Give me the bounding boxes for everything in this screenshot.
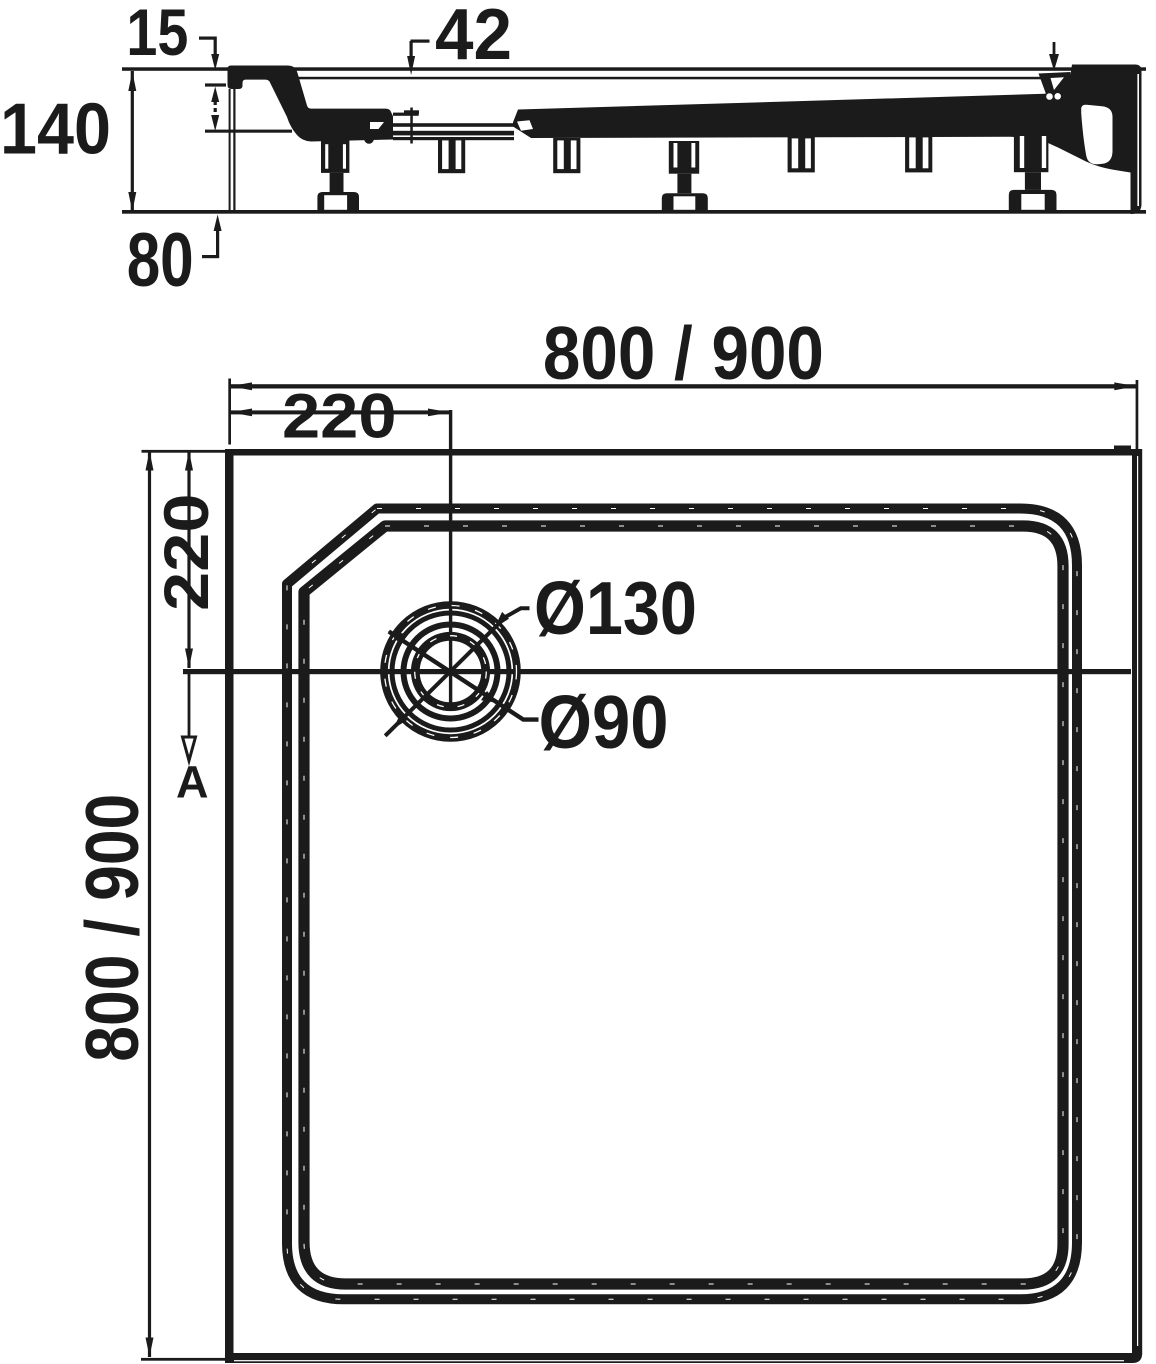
svg-text:Ø90: Ø90 bbox=[539, 680, 669, 764]
svg-text:140: 140 bbox=[0, 89, 111, 169]
svg-text:42: 42 bbox=[435, 0, 512, 75]
svg-text:800 / 900: 800 / 900 bbox=[70, 794, 154, 1062]
svg-text:800 / 900: 800 / 900 bbox=[543, 311, 824, 395]
svg-text:220: 220 bbox=[282, 381, 397, 451]
svg-text:220: 220 bbox=[152, 494, 222, 612]
svg-text:Ø130: Ø130 bbox=[534, 566, 697, 650]
svg-text:15: 15 bbox=[126, 0, 188, 69]
svg-text:A: A bbox=[176, 757, 209, 808]
svg-text:80: 80 bbox=[127, 218, 194, 303]
